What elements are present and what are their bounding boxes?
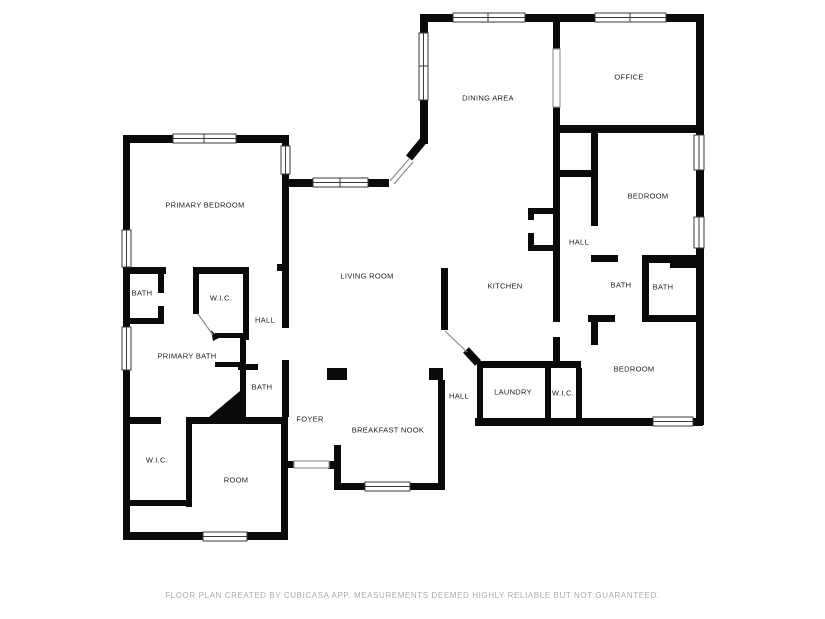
room-label-hall-east: HALL (569, 238, 589, 247)
floor-plan: PRIMARY BEDROOM DINING AREA OFFICE BEDRO… (0, 0, 825, 619)
window (419, 33, 428, 100)
room-label-office: OFFICE (614, 73, 643, 82)
floor-plan-drawing (0, 0, 825, 619)
post (327, 368, 347, 380)
window (453, 13, 525, 22)
window (122, 327, 131, 370)
room-label-hall-west: HALL (255, 316, 275, 325)
room-label-primary-bath: PRIMARY BATH (157, 352, 216, 361)
front-door (294, 461, 329, 468)
room-label-bedroom-ne: BEDROOM (628, 192, 669, 201)
room-label-wic-primary: W.I.C. (210, 294, 232, 303)
room-label-wic-south: W.I.C. (552, 389, 574, 398)
room-label-living-room: LIVING ROOM (340, 272, 393, 281)
room-label-foyer: FOYER (296, 415, 323, 424)
window (653, 417, 693, 426)
room-label-bath-east-2: BATH (653, 283, 674, 292)
window (313, 178, 368, 187)
room-label-bath-west: BATH (132, 289, 153, 298)
window (595, 13, 666, 22)
walls (123, 14, 704, 540)
room-label-hall-south: HALL (449, 392, 469, 401)
room-label-primary-bedroom: PRIMARY BEDROOM (165, 201, 244, 210)
opening-office (553, 49, 560, 107)
door-openings (198, 49, 560, 468)
stairs-triangle (209, 391, 240, 417)
room-label-bath-east-1: BATH (611, 281, 632, 290)
room-label-wic-sw: W.I.C. (146, 456, 168, 465)
room-label-bath-foyer: BATH (252, 383, 273, 392)
room-label-laundry: LAUNDRY (494, 388, 532, 397)
window (203, 532, 247, 541)
disclaimer-text: FLOOR PLAN CREATED BY CUBICASA APP. MEAS… (0, 591, 825, 600)
room-label-room: ROOM (224, 476, 249, 485)
window (694, 135, 704, 170)
door-kitchen-hall (445, 331, 467, 352)
window (365, 482, 410, 491)
window (173, 134, 236, 143)
room-label-bedroom-se: BEDROOM (614, 365, 655, 374)
windows (122, 13, 704, 541)
door-wic (198, 314, 213, 335)
post (429, 368, 443, 380)
room-label-kitchen: KITCHEN (487, 282, 522, 291)
window (694, 217, 704, 248)
window (281, 146, 290, 174)
room-label-dining-area: DINING AREA (462, 94, 514, 103)
window (122, 230, 131, 267)
room-label-breakfast-nook: BREAKFAST NOOK (352, 426, 424, 435)
